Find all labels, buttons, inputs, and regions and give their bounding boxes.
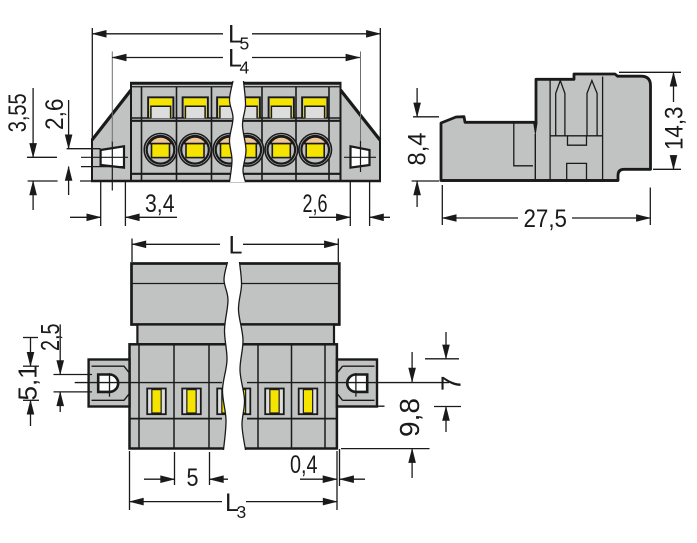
svg-text:9,8: 9,8: [394, 398, 425, 437]
svg-text:2,6: 2,6: [303, 190, 328, 218]
svg-text:27,5: 27,5: [524, 205, 568, 233]
svg-text:0,4: 0,4: [290, 451, 318, 479]
svg-text:8,4: 8,4: [404, 132, 432, 165]
svg-text:7: 7: [436, 375, 467, 391]
svg-text:5,1: 5,1: [13, 364, 43, 400]
svg-text:4: 4: [240, 58, 250, 78]
svg-text:3,55: 3,55: [4, 93, 32, 132]
svg-text:3,4: 3,4: [145, 190, 175, 218]
svg-text:2,6: 2,6: [41, 99, 69, 131]
svg-text:2,5: 2,5: [35, 324, 65, 352]
svg-text:14,3: 14,3: [661, 107, 689, 151]
svg-text:5: 5: [187, 464, 199, 492]
svg-text:L: L: [229, 232, 243, 260]
svg-text:3: 3: [237, 502, 247, 522]
